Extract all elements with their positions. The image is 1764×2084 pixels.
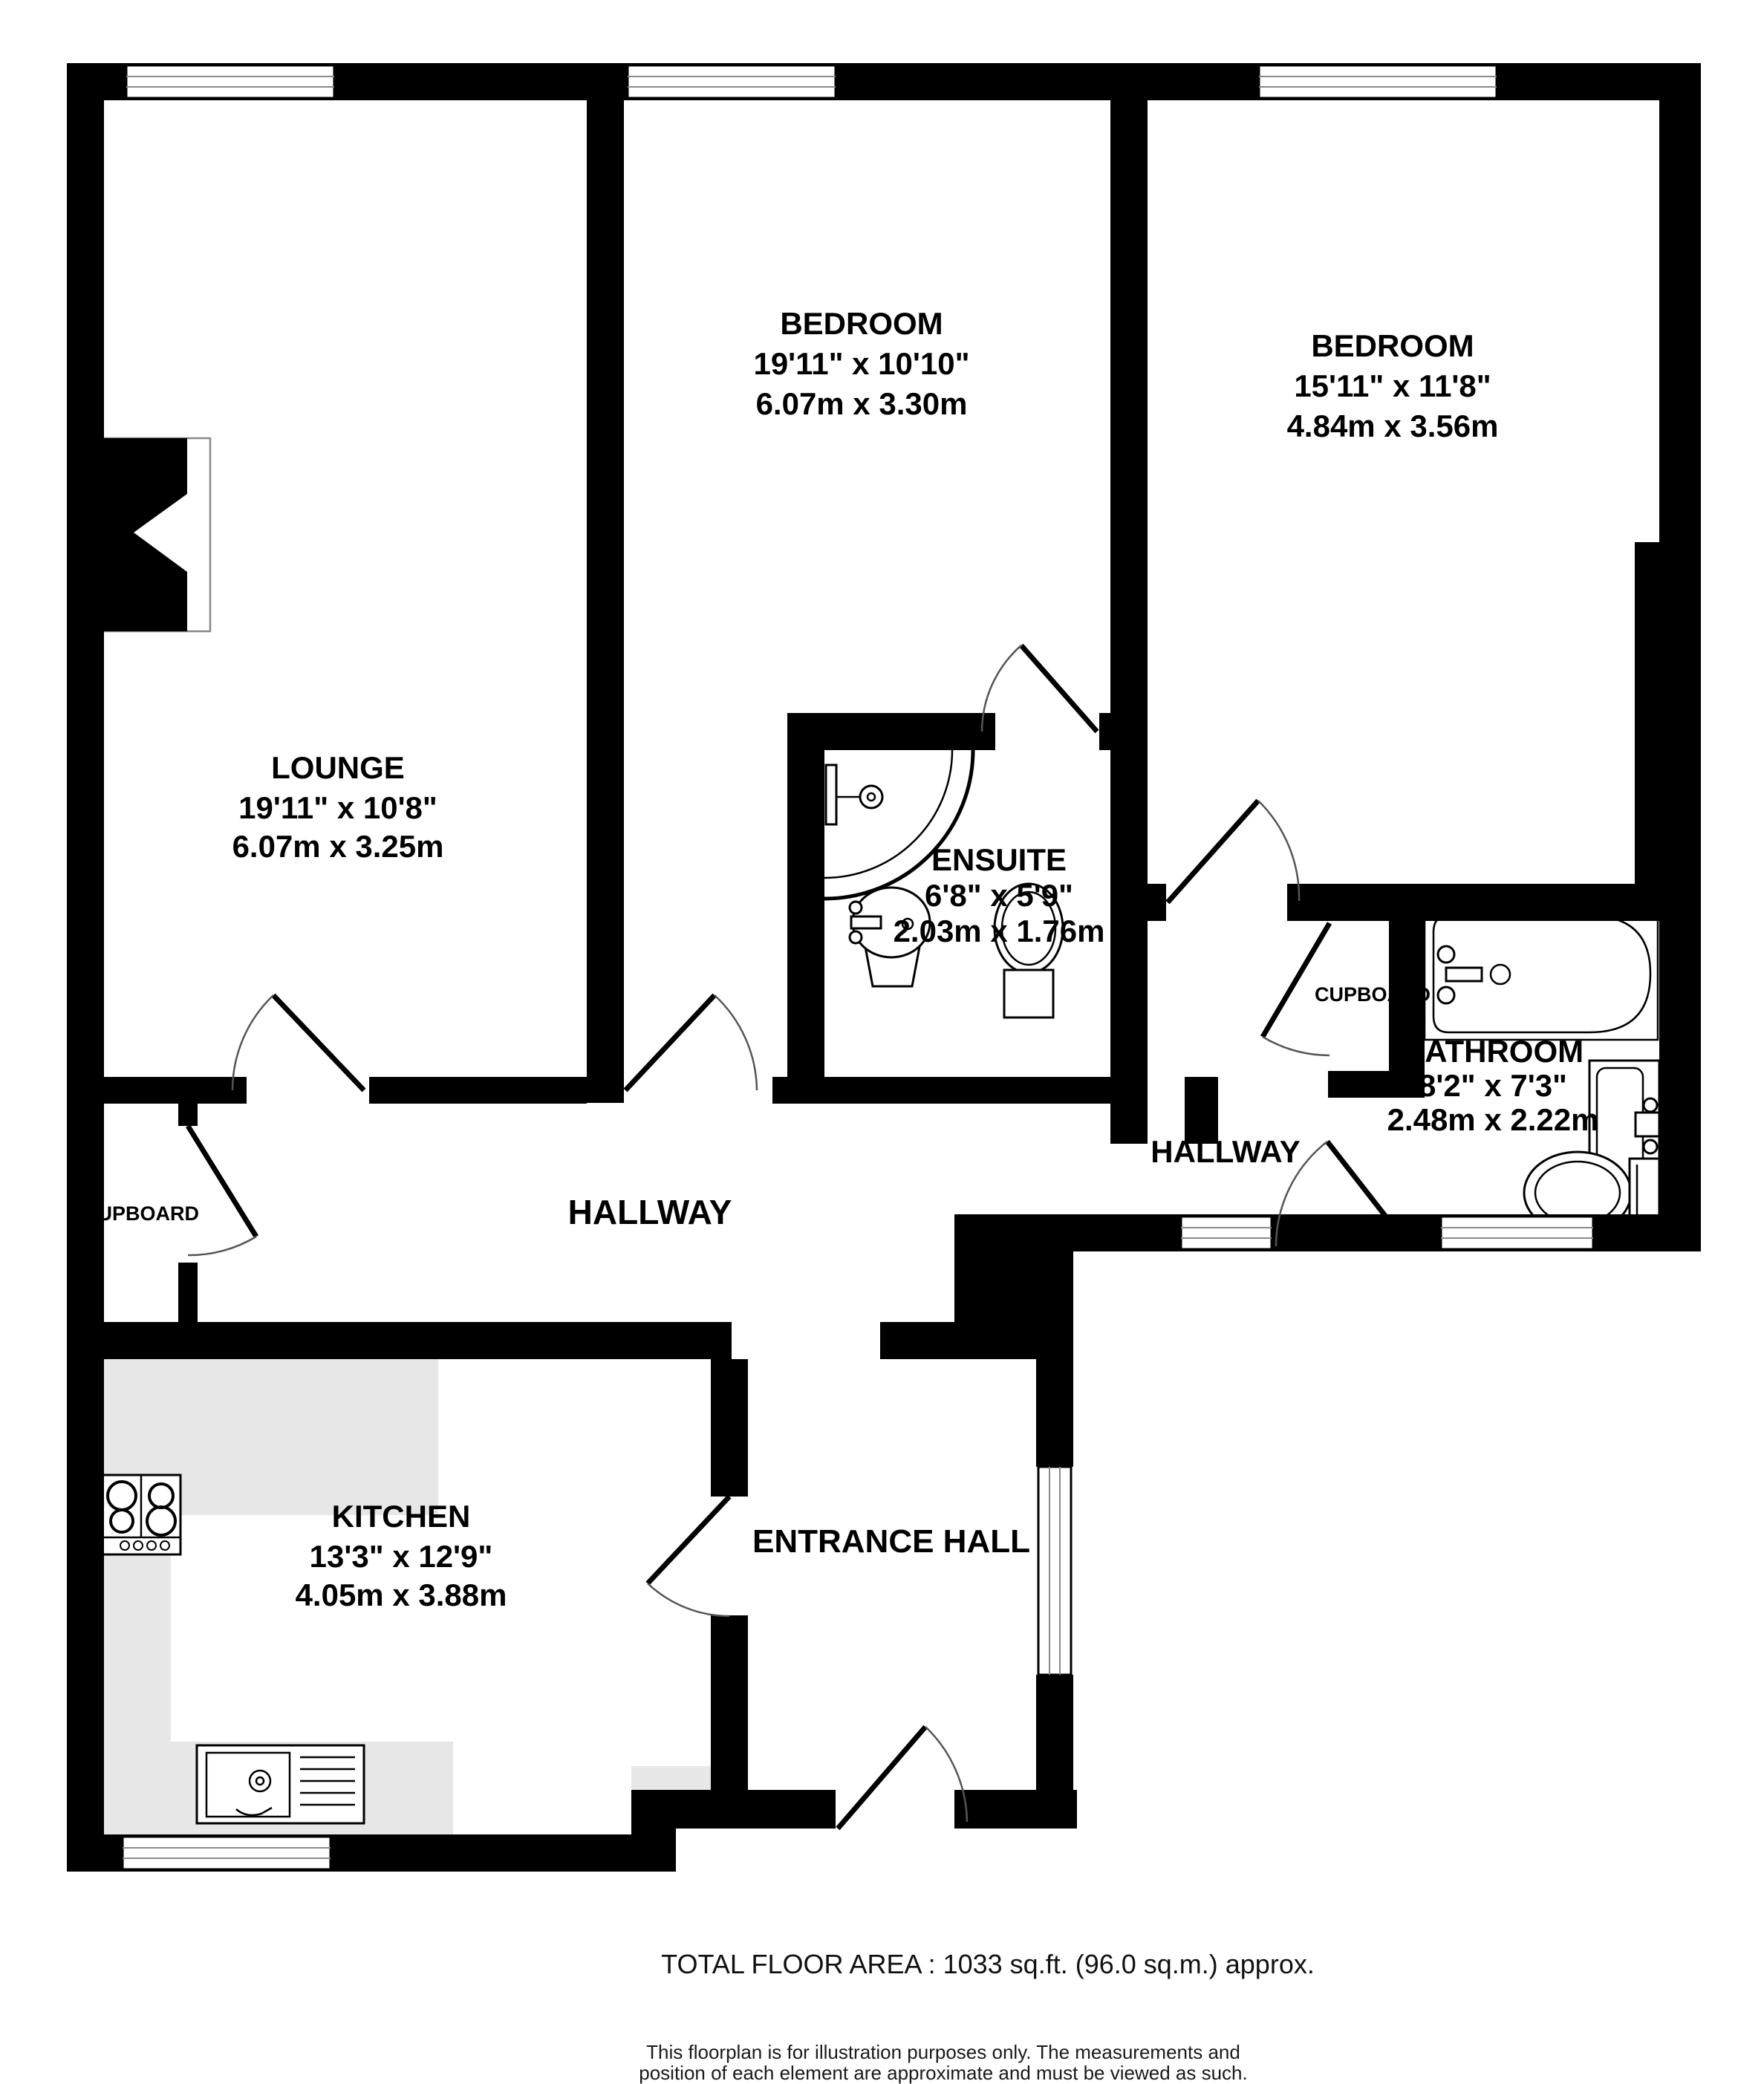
svg-text:19'11" x 10'10": 19'11" x 10'10" [753,346,969,381]
bedroom2-door [1168,801,1299,902]
entrance-hall-window [1038,1467,1071,1675]
lounge-window [126,65,334,98]
svg-text:6.07m x 3.25m: 6.07m x 3.25m [232,829,444,864]
disclaimer-line1: This floorplan is for illustration purpo… [646,2041,1240,2063]
floorplan-drawing: CUPBOARD CUPBOARD [0,0,1764,2084]
disclaimer-line2: position of each element are approximate… [639,2062,1247,2084]
bedroom1-label: BEDROOM 19'11" x 10'10" 6.07m x 3.30m [753,306,969,421]
svg-text:BEDROOM: BEDROOM [1311,328,1474,363]
bathroom-window [1441,1217,1593,1249]
svg-text:4.05m x 3.88m: 4.05m x 3.88m [296,1577,507,1612]
svg-text:8'2" x 7'3": 8'2" x 7'3" [1419,1068,1567,1103]
svg-text:2.03m x 1.76m: 2.03m x 1.76m [894,914,1105,948]
hallway-right-label: HALLWAY [1150,1134,1300,1169]
cupboard-left-door [188,1126,256,1255]
svg-text:ENSUITE: ENSUITE [931,842,1067,877]
svg-text:15'11" x 11'8": 15'11" x 11'8" [1294,368,1491,403]
kitchen-door [648,1497,729,1616]
bedroom2-label: BEDROOM 15'11" x 11'8" 4.84m x 3.56m [1287,328,1499,443]
bath-icon [1425,908,1658,1040]
floorplan-page: CUPBOARD CUPBOARD [0,0,1764,2084]
hallway-window [1181,1217,1272,1249]
svg-text:2.48m x 2.22m: 2.48m x 2.22m [1387,1102,1599,1137]
svg-text:BEDROOM: BEDROOM [780,306,943,341]
bathroom-label: BATHROOM 8'2" x 7'3" 2.48m x 2.22m [1387,1034,1599,1137]
svg-text:19'11" x 10'8": 19'11" x 10'8" [238,790,437,825]
bedroom1-door [625,995,757,1090]
bedroom1-window [628,65,836,98]
kitchen-label: KITCHEN 13'3" x 12'9" 4.05m x 3.88m [296,1499,507,1612]
svg-text:13'3" x 12'9": 13'3" x 12'9" [310,1539,493,1574]
hallway-main-label: HALLWAY [568,1193,732,1231]
entrance-hall-label: ENTRANCE HALL [752,1523,1030,1560]
lounge-door [232,995,364,1090]
front-door [838,1727,967,1829]
kitchen-window [123,1837,331,1869]
total-floor-area: TOTAL FLOOR AREA : 1033 sq.ft. (96.0 sq.… [661,1949,1315,1979]
svg-text:LOUNGE: LOUNGE [271,750,405,785]
kitchen-sink-icon [197,1745,364,1823]
svg-text:KITCHEN: KITCHEN [332,1499,471,1534]
svg-text:BATHROOM: BATHROOM [1402,1034,1584,1069]
footer: TOTAL FLOOR AREA : 1033 sq.ft. (96.0 sq.… [639,1949,1315,2084]
svg-text:6.07m x 3.30m: 6.07m x 3.30m [756,386,968,421]
fireplace-icon [102,438,210,631]
labels-under-walls: CUPBOARD CUPBOARD [83,983,1431,1225]
hob-icon [102,1475,180,1554]
ensuite-door [982,645,1097,732]
bedroom2-window [1259,65,1497,98]
svg-text:4.84m x 3.56m: 4.84m x 3.56m [1287,408,1499,443]
svg-text:6'8" x 5'9": 6'8" x 5'9" [925,878,1073,913]
lounge-label: LOUNGE 19'11" x 10'8" 6.07m x 3.25m [232,750,444,864]
